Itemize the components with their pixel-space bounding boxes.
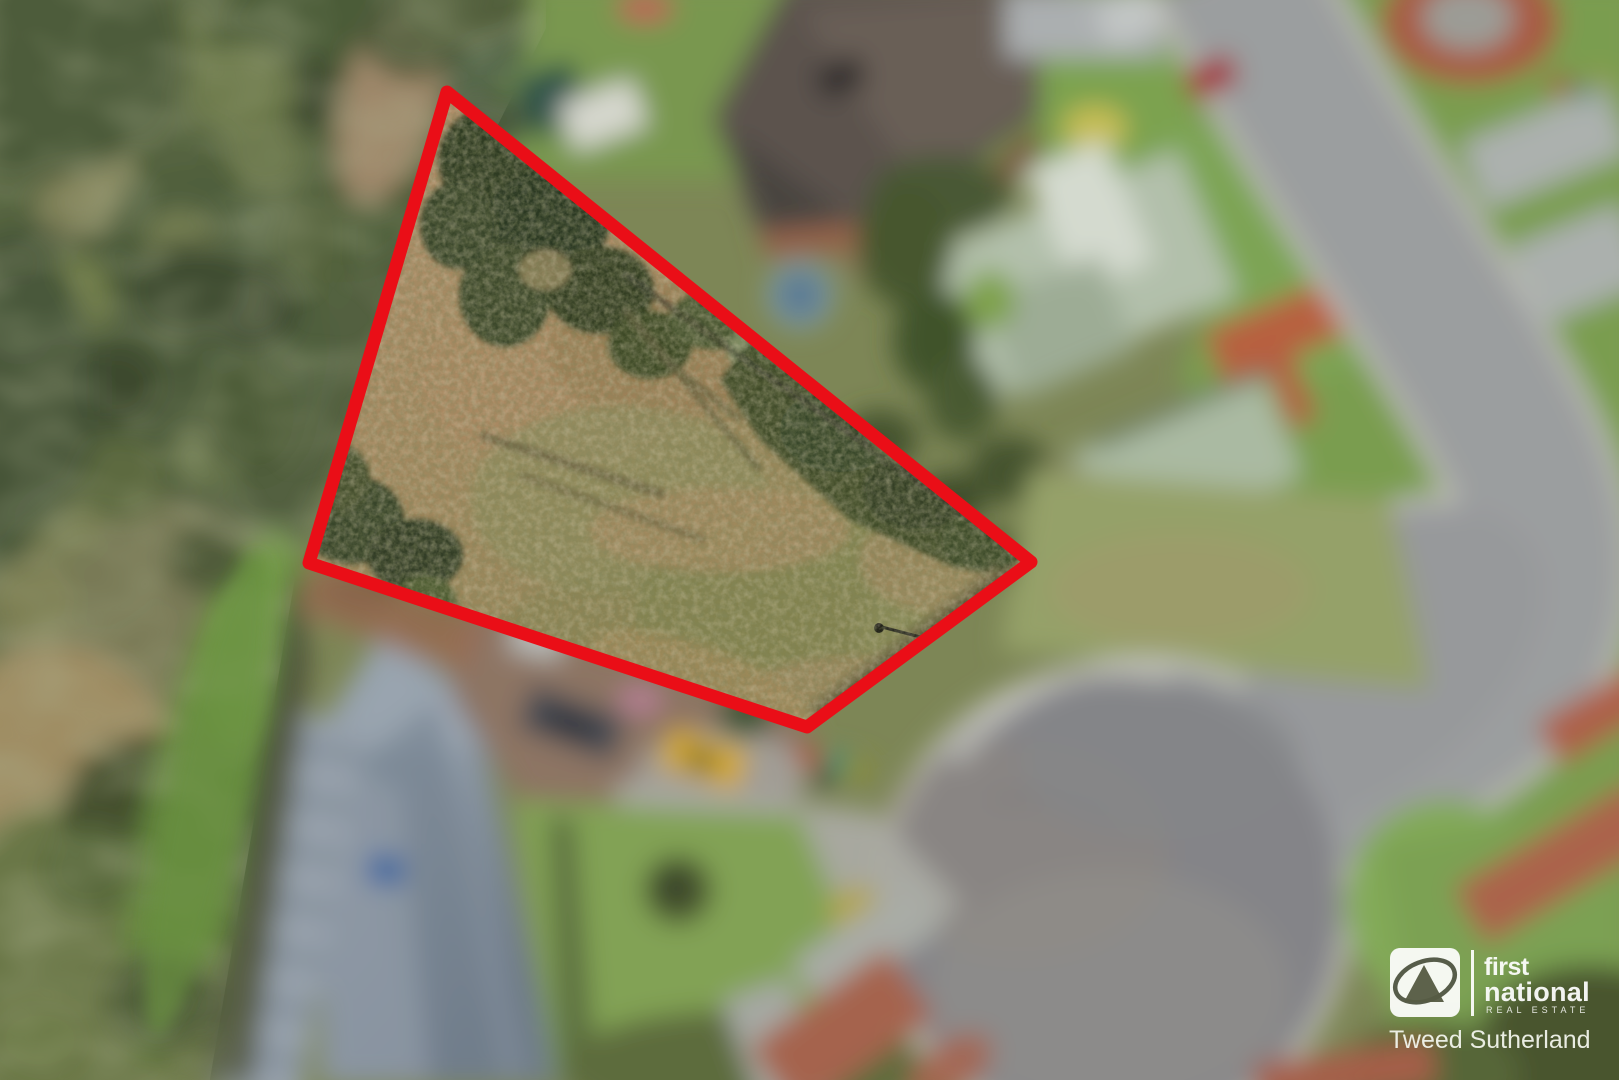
svg-text:REAL ESTATE: REAL ESTATE (1486, 1005, 1589, 1015)
svg-text:national: national (1484, 977, 1590, 1007)
svg-text:Tweed Sutherland: Tweed Sutherland (1389, 1026, 1591, 1054)
